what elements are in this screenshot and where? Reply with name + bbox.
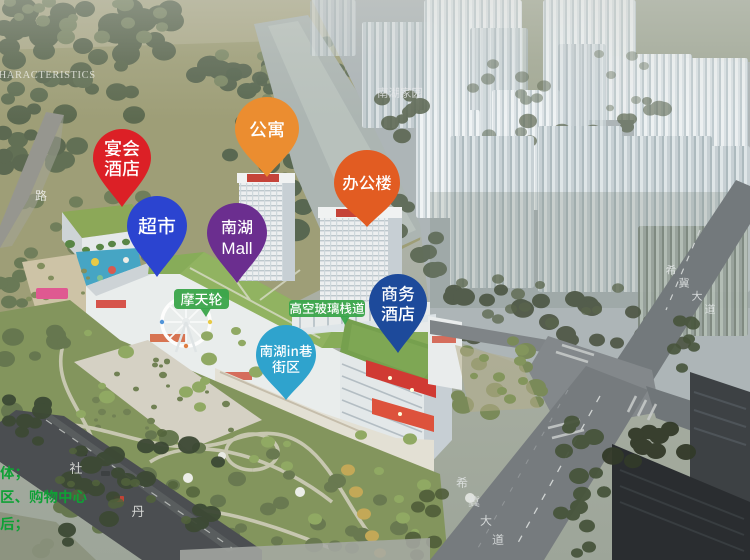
svg-text:Mall: Mall — [221, 239, 252, 258]
svg-text:CHARACTERISTICS: CHARACTERISTICS — [0, 70, 96, 81]
